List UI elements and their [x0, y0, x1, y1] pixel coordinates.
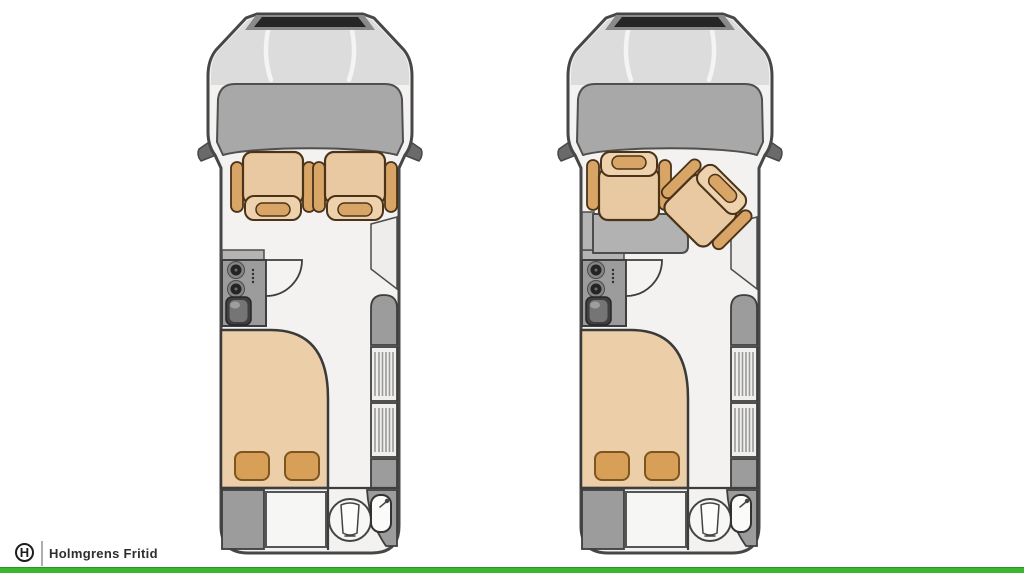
floorplan-seats-forward [197, 12, 437, 557]
floorplan-canvas: H Holmgrens Fritid [0, 0, 1024, 577]
van-shell [198, 14, 422, 553]
brand-name: Holmgrens Fritid [49, 546, 158, 561]
van-shell [558, 14, 782, 553]
holmgrens-logo-icon: H [15, 543, 34, 562]
logo-divider [41, 541, 43, 566]
floorplan-seats-swiveled [557, 12, 797, 557]
green-accent-bar [0, 567, 1024, 573]
